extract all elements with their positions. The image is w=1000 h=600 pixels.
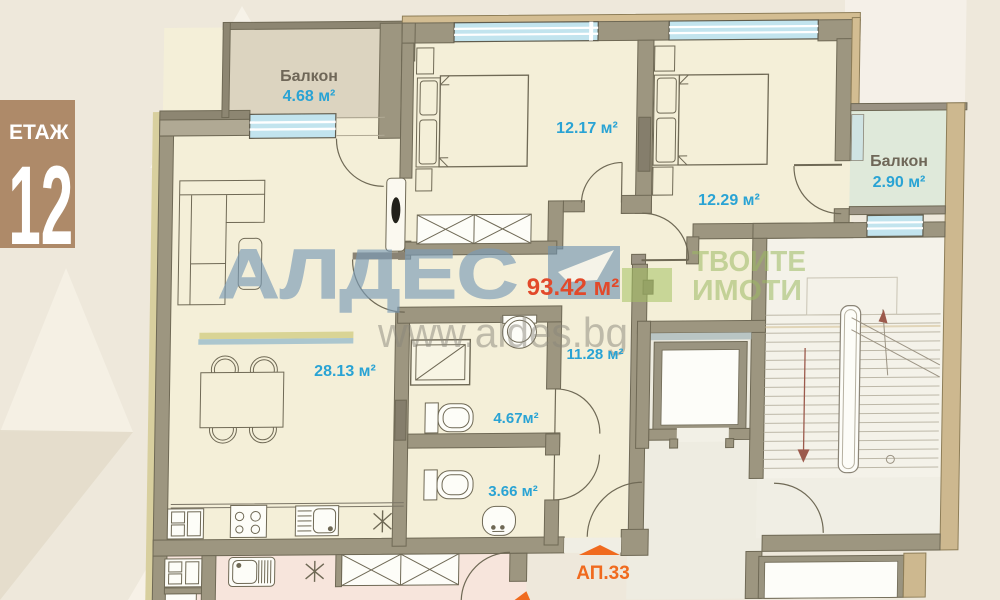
svg-text:3.66 м²: 3.66 м² (488, 483, 537, 500)
svg-text:АП.33: АП.33 (576, 563, 630, 584)
svg-text:Балкон: Балкон (280, 68, 338, 85)
svg-text:11.28 м²: 11.28 м² (567, 346, 624, 363)
svg-text:ИМОТИ: ИМОТИ (692, 275, 802, 307)
svg-text:12: 12 (8, 142, 73, 267)
svg-text:12.29 м²: 12.29 м² (698, 192, 760, 209)
svg-text:2.90 м²: 2.90 м² (873, 174, 926, 191)
svg-text:28.13 м²: 28.13 м² (314, 363, 376, 380)
svg-text:4.68 м²: 4.68 м² (283, 88, 336, 105)
svg-text:4.67м²: 4.67м² (493, 410, 538, 427)
svg-text:12.17 м²: 12.17 м² (556, 120, 618, 137)
svg-text:ТВОИТЕ: ТВОИТЕ (692, 246, 806, 278)
svg-text:Балкон: Балкон (870, 153, 928, 170)
svg-text:ЕТАЖ: ЕТАЖ (9, 121, 70, 144)
svg-text:93.42 м²: 93.42 м² (527, 274, 619, 301)
svg-text:АЛДЕС: АЛДЕС (218, 235, 518, 313)
